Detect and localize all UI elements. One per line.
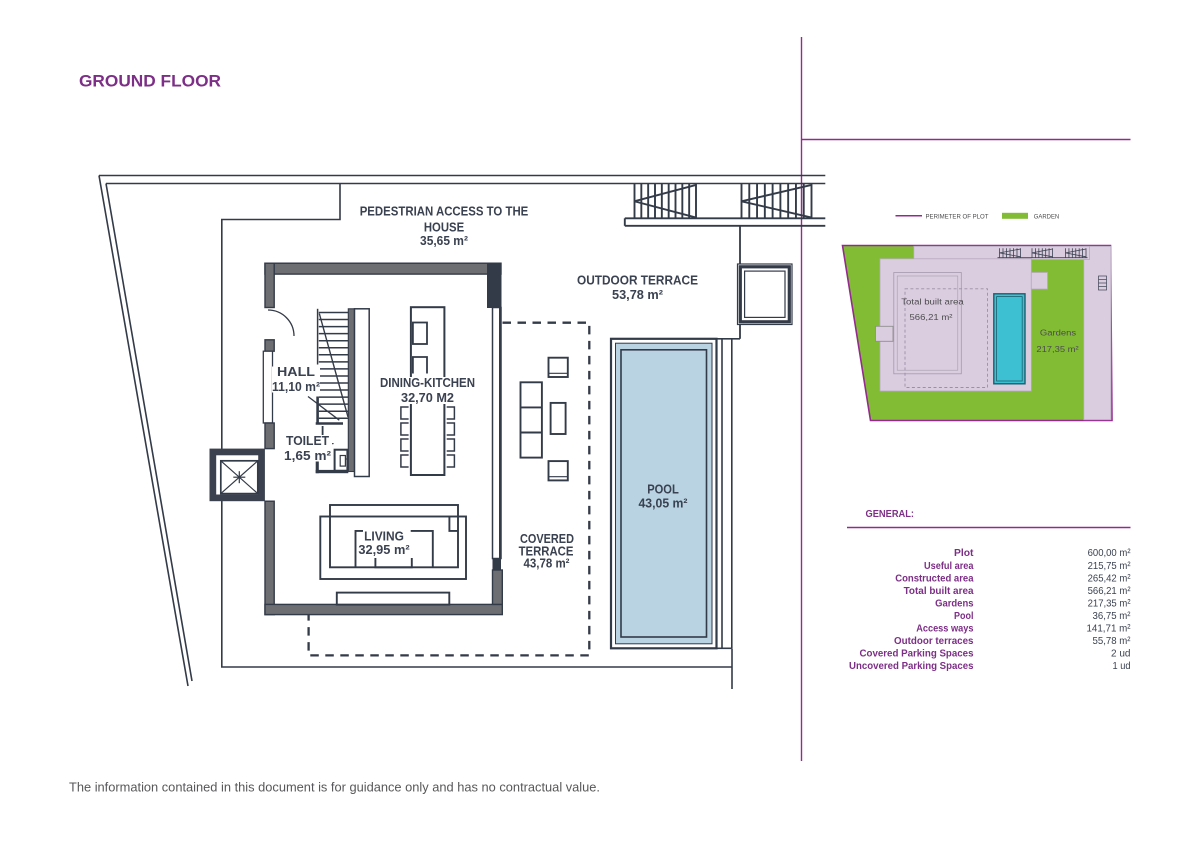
svg-text:1,65 m²: 1,65 m² <box>284 448 332 463</box>
svg-text:Plot: Plot <box>954 547 974 559</box>
svg-text:217,35 m²: 217,35 m² <box>1088 597 1131 609</box>
svg-text:600,00 m²: 600,00 m² <box>1088 547 1131 559</box>
svg-text:PERIMETER OF PLOT: PERIMETER OF PLOT <box>926 213 989 220</box>
svg-text:The information contained in t: The information contained in this docume… <box>69 780 600 795</box>
svg-text:11,10 m²: 11,10 m² <box>272 379 321 394</box>
svg-text:Total built area: Total built area <box>901 297 964 307</box>
svg-text:Covered Parking Spaces: Covered Parking Spaces <box>860 648 974 660</box>
svg-text:Constructed area: Constructed area <box>895 572 973 584</box>
svg-text:35,65 m²: 35,65 m² <box>420 233 469 248</box>
svg-text:32,95 m²: 32,95 m² <box>358 542 410 557</box>
svg-text:Access ways: Access ways <box>916 623 973 635</box>
svg-text:Useful area: Useful area <box>924 560 974 572</box>
svg-text:55,78 m²: 55,78 m² <box>1093 635 1131 647</box>
svg-text:43,05 m²: 43,05 m² <box>639 496 689 511</box>
svg-text:1 ud: 1 ud <box>1113 660 1131 672</box>
svg-text:GENERAL:: GENERAL: <box>866 509 915 520</box>
svg-text:32,70 M2: 32,70 M2 <box>401 390 454 405</box>
svg-text:POOL: POOL <box>647 482 679 497</box>
svg-text:Total built area: Total built area <box>904 585 974 597</box>
svg-text:Uncovered Parking Spaces: Uncovered Parking Spaces <box>849 660 974 672</box>
svg-text:HALL: HALL <box>277 364 315 379</box>
svg-text:HOUSE: HOUSE <box>424 219 465 234</box>
svg-text:566,21 m²: 566,21 m² <box>910 312 953 322</box>
svg-text:PEDESTRIAN ACCESS TO THE: PEDESTRIAN ACCESS TO THE <box>360 203 529 218</box>
svg-text:GARDEN: GARDEN <box>1034 213 1060 220</box>
svg-text:Gardens: Gardens <box>1040 328 1076 338</box>
svg-text:566,21 m²: 566,21 m² <box>1088 585 1131 597</box>
svg-text:OUTDOOR TERRACE: OUTDOOR TERRACE <box>577 273 698 288</box>
svg-text:141,71 m²: 141,71 m² <box>1087 623 1131 635</box>
svg-text:265,42 m²: 265,42 m² <box>1088 572 1131 584</box>
svg-text:36,75 m²: 36,75 m² <box>1093 610 1131 622</box>
svg-text:215,75 m²: 215,75 m² <box>1088 560 1131 572</box>
svg-text:TOILET: TOILET <box>286 433 329 448</box>
svg-text:2 ud: 2 ud <box>1111 648 1131 660</box>
svg-text:Pool: Pool <box>954 610 974 622</box>
svg-text:43,78 m²: 43,78 m² <box>524 556 571 571</box>
svg-text:217,35 m²: 217,35 m² <box>1036 344 1078 354</box>
svg-text:DINING-KITCHEN: DINING-KITCHEN <box>380 375 475 390</box>
svg-text:Outdoor terraces: Outdoor terraces <box>894 635 974 647</box>
svg-text:Gardens: Gardens <box>935 597 974 609</box>
svg-text:GROUND FLOOR: GROUND FLOOR <box>79 72 221 91</box>
svg-text:53,78 m²: 53,78 m² <box>612 287 664 302</box>
